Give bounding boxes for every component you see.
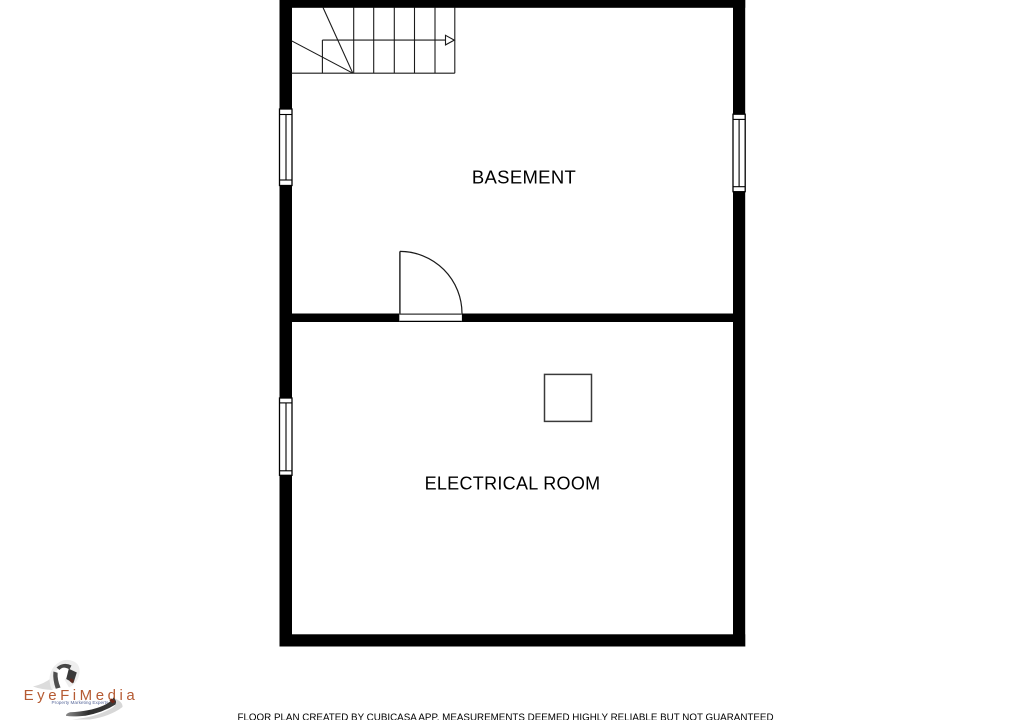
svg-text:BASEMENT: BASEMENT xyxy=(472,167,576,188)
svg-text:ELECTRICAL ROOM: ELECTRICAL ROOM xyxy=(425,474,601,494)
svg-text:Property Marketing Experts: Property Marketing Experts xyxy=(52,700,109,705)
svg-text:FLOOR PLAN CREATED BY CUBICASA: FLOOR PLAN CREATED BY CUBICASA APP. MEAS… xyxy=(237,713,773,720)
